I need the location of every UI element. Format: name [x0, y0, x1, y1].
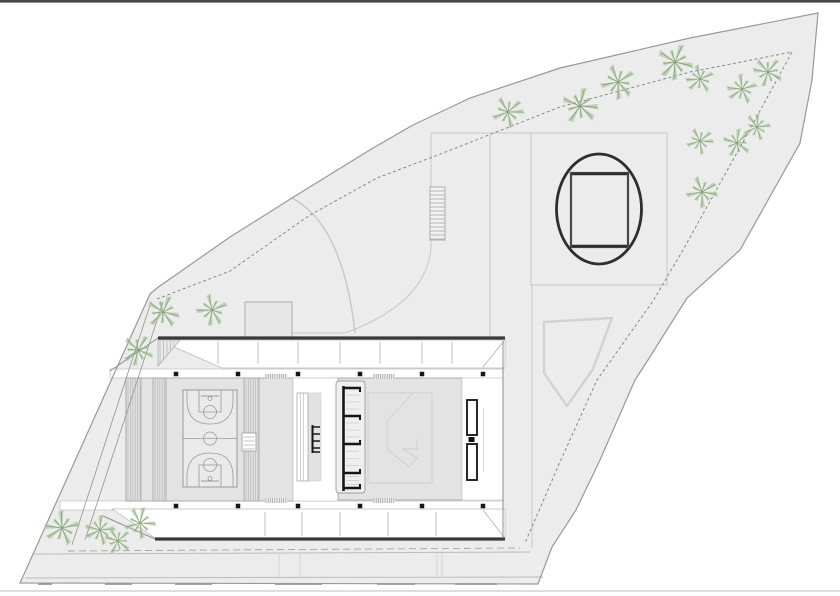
site-plan-page: [0, 0, 840, 596]
door-bracket: [467, 444, 477, 480]
door-bracket-mid: [469, 437, 475, 442]
column-dot: [174, 372, 179, 377]
column-dot: [420, 504, 425, 509]
door-bracket: [467, 400, 477, 435]
column-dot: [236, 372, 241, 377]
column-dot: [481, 372, 486, 377]
corridor-strip: [308, 393, 321, 481]
column-dot: [296, 372, 301, 377]
ramp: [297, 393, 308, 481]
column-dot: [481, 504, 486, 509]
colonnade-walk-top: [110, 369, 503, 378]
page-top-border: [0, 0, 840, 3]
column-dot: [420, 372, 425, 377]
column-dot: [236, 504, 241, 509]
right-wall-zone: [462, 378, 503, 500]
scorer-table: [242, 433, 256, 451]
column-dot: [358, 504, 363, 509]
column-dot: [174, 504, 179, 509]
column-dot: [358, 372, 363, 377]
site-plan-drawing: [0, 0, 840, 596]
roof-band-bottom: [112, 509, 505, 538]
column-dot: [296, 504, 301, 509]
utility-box: [245, 302, 292, 337]
